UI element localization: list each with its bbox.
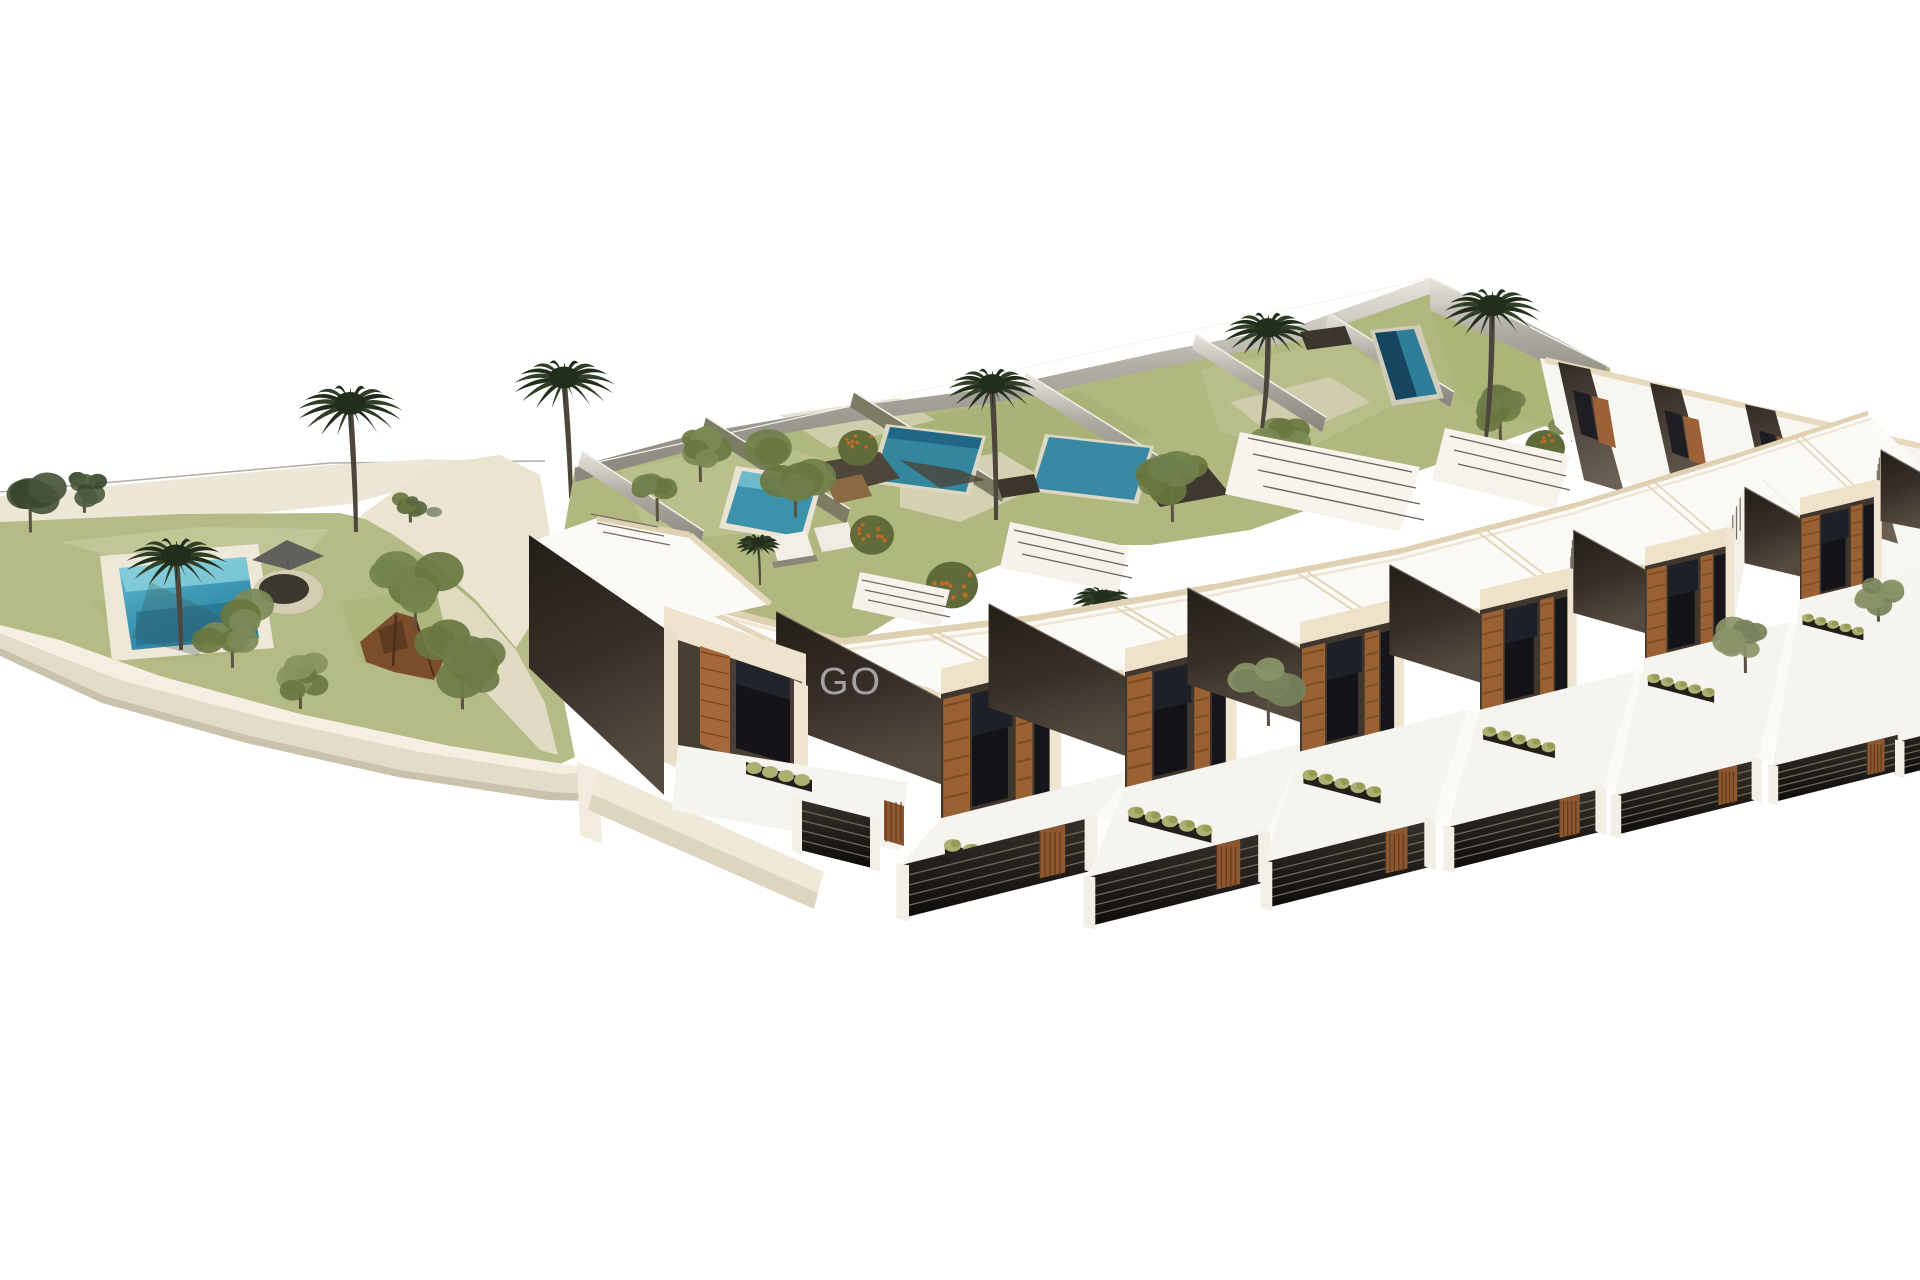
svg-text:GO: GO [819, 661, 882, 703]
